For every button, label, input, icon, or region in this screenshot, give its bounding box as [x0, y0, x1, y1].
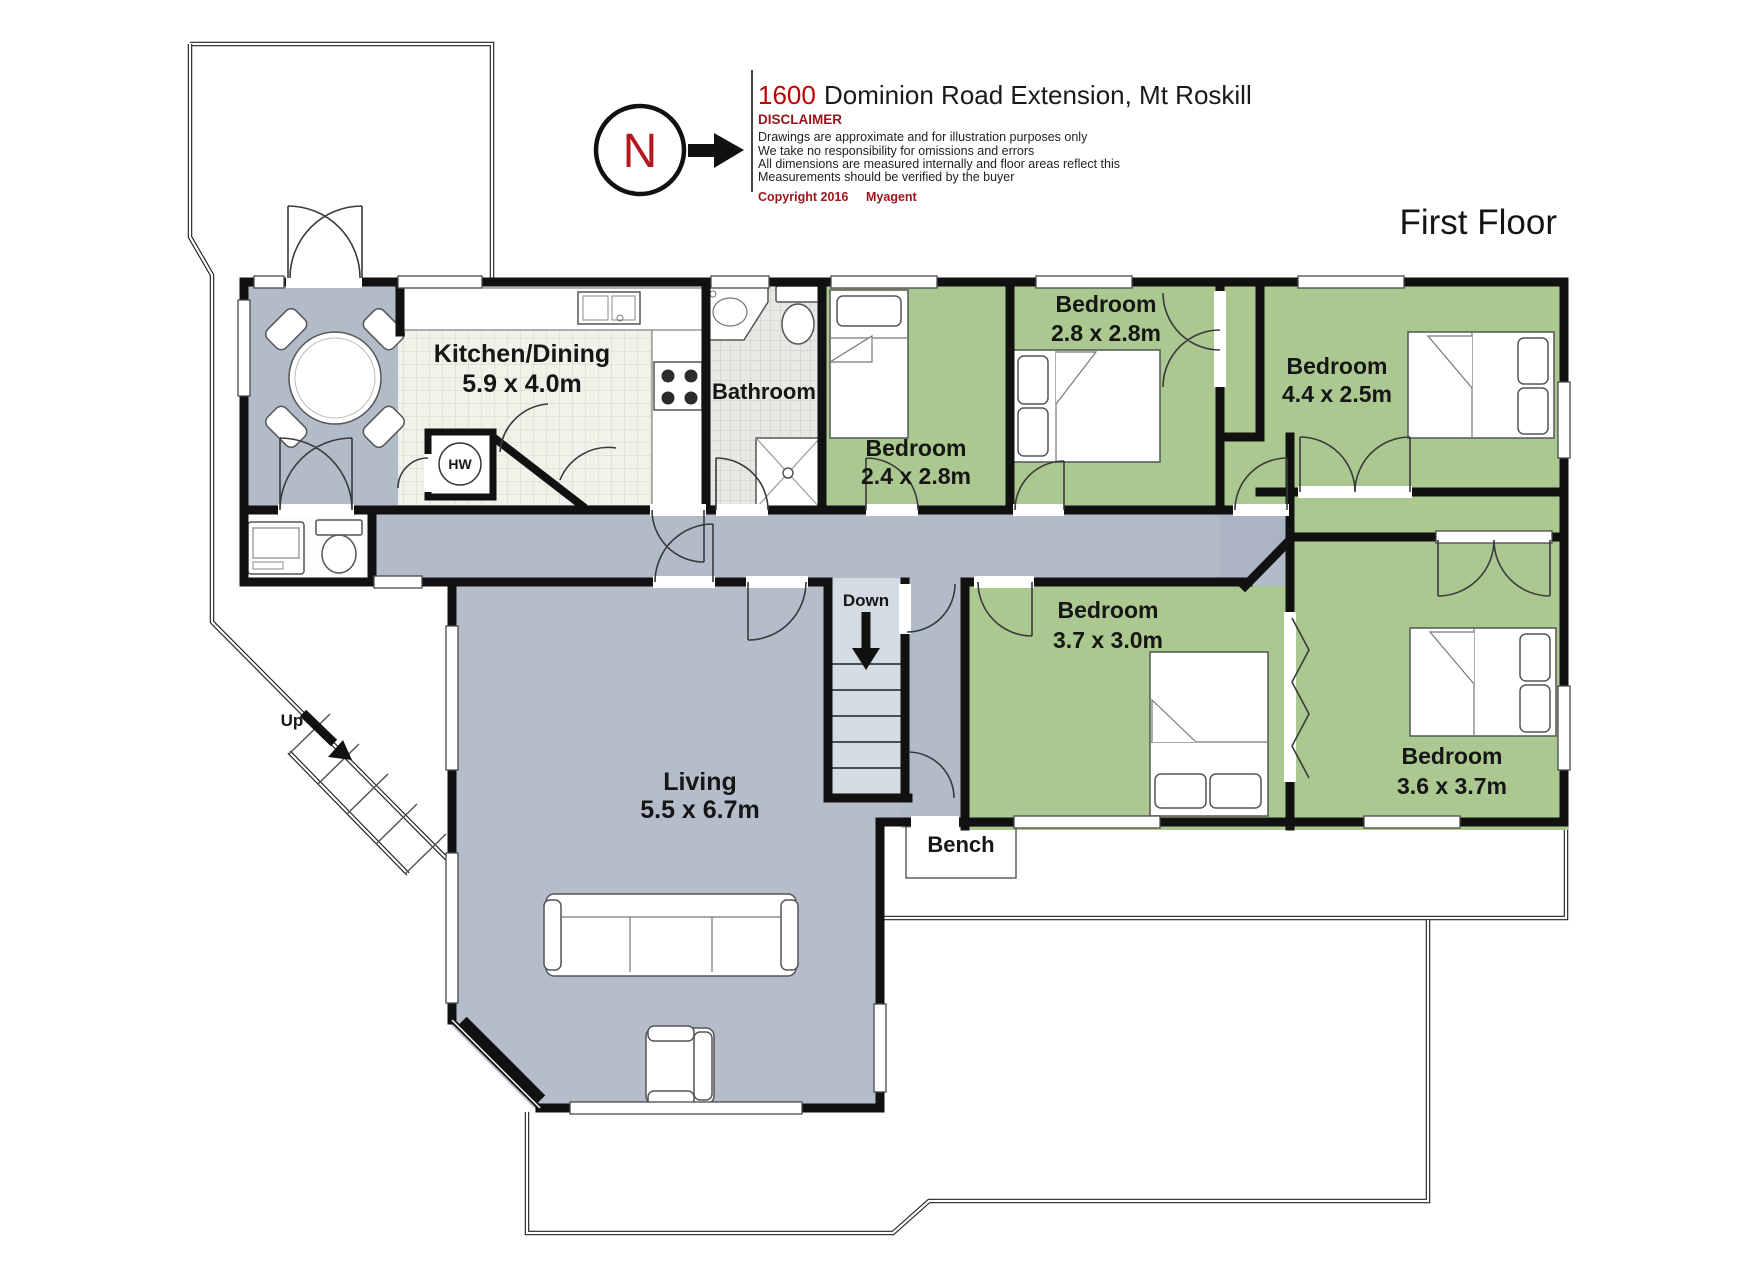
address-text: Dominion Road Extension, Mt Roskill [824, 80, 1252, 110]
stairs-up: Up [281, 711, 446, 874]
stove-icon [654, 362, 702, 410]
north-compass-icon: N [596, 106, 744, 194]
copyright: Copyright 2016 [758, 190, 848, 204]
copyright-agent: Myagent [866, 190, 918, 204]
floor-plan-drawing: N 1600 Dominion Road Extension, Mt Roski… [0, 0, 1756, 1280]
header: N 1600 Dominion Road Extension, Mt Roski… [596, 70, 1557, 242]
down-label: Down [843, 591, 889, 610]
compass-letter: N [623, 125, 658, 178]
disclaimer-line: We take no responsibility for omissions … [758, 144, 1034, 158]
address-number: 1600 [758, 80, 816, 110]
bedroom44-dims: 4.4 x 2.5m [1282, 381, 1392, 407]
bedroom36-label: Bedroom [1402, 743, 1503, 769]
corridor-floor [901, 578, 969, 828]
sofa-icon [544, 894, 798, 976]
compass-arrow-icon [714, 133, 744, 168]
floor-plan-page: N 1600 Dominion Road Extension, Mt Roski… [0, 0, 1756, 1280]
bathroom-label: Bathroom [712, 379, 816, 404]
double-bed-icon [1408, 332, 1554, 438]
bedroom37-dims: 3.7 x 3.0m [1053, 627, 1163, 653]
single-bed-icon [830, 290, 908, 438]
up-label: Up [281, 711, 304, 730]
bedroom28-label: Bedroom [1056, 291, 1157, 317]
double-bed-icon [1150, 652, 1268, 816]
bedroom44-label: Bedroom [1287, 353, 1388, 379]
double-bed-icon [1410, 628, 1556, 736]
shower-icon [756, 438, 820, 508]
bedroom36-dims: 3.6 x 3.7m [1397, 773, 1507, 799]
kitchen-sink-icon [578, 292, 640, 324]
hw-label: HW [448, 456, 472, 472]
kitchen-dims: 5.9 x 4.0m [462, 370, 582, 398]
double-bed-icon [1012, 350, 1160, 462]
bedroom24-dims: 2.4 x 2.8m [861, 463, 971, 489]
disclaimer-line: Drawings are approximate and for illustr… [758, 130, 1088, 144]
bench-label: Bench [927, 832, 994, 857]
bedroom37-label: Bedroom [1058, 597, 1159, 623]
disclaimer-line: Measurements should be verified by the b… [758, 170, 1014, 184]
kitchen-label: Kitchen/Dining [434, 340, 610, 368]
bedroom28-dims: 2.8 x 2.8m [1051, 320, 1161, 346]
washing-machine-icon [248, 522, 304, 574]
disclaimer-title: DISCLAIMER [758, 112, 842, 127]
living-label: Living [663, 768, 737, 796]
floor-title: First Floor [1400, 203, 1558, 242]
disclaimer-line: All dimensions are measured internally a… [758, 157, 1120, 171]
living-dims: 5.5 x 6.7m [640, 796, 760, 824]
bedroom24-label: Bedroom [866, 435, 967, 461]
armchair-icon [646, 1026, 714, 1106]
hot-water-icon: HW [439, 443, 481, 485]
hallway-floor [372, 505, 1290, 586]
